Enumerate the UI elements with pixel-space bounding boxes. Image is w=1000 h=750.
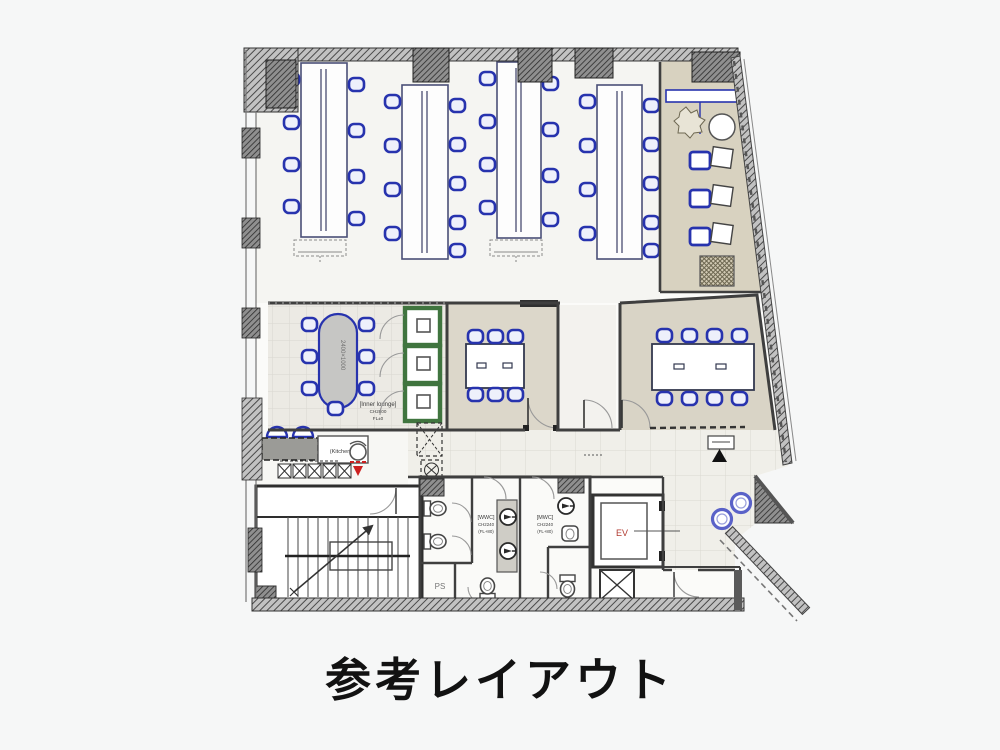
ceiling-height-label: CH2800 — [370, 409, 387, 414]
kitchen-sink — [350, 444, 366, 460]
room-name-label: [Inner lounge] — [360, 402, 397, 408]
kitchen-label: (Kitchen) — [330, 449, 353, 455]
wwc-label: [WWC] — [477, 515, 495, 521]
kitchen-counter — [262, 438, 318, 460]
ps-label: PS — [435, 582, 446, 591]
wwc-fl-label: (FL+80) — [478, 529, 494, 534]
floor-level-label: FL±0 — [373, 416, 384, 421]
locker-row — [278, 464, 351, 478]
meeting-table — [466, 344, 524, 388]
floor-plan-drawing: 2400×1000 [Inner lounge] CH2800 FL±0 — [0, 0, 1000, 640]
mwc-label: [MWC] — [537, 515, 554, 521]
ev-label: EV — [616, 528, 628, 538]
table-dimension-label: 2400×1000 — [339, 340, 345, 371]
oval-table — [319, 314, 357, 408]
floor-plan-page: 2400×1000 [Inner lounge] CH2800 FL±0 — [0, 0, 1000, 750]
planter-box — [700, 256, 734, 286]
staircase — [256, 486, 422, 602]
plan-title: 参考レイアウト — [0, 644, 1000, 710]
wwc-ch-label: CH2240 — [478, 522, 495, 527]
mwc-ch-label: CH2240 — [537, 522, 554, 527]
lounge-counter — [666, 90, 737, 102]
meeting-table — [652, 344, 754, 390]
round-table — [709, 114, 735, 140]
mwc-fl-label: (FL+80) — [537, 529, 553, 534]
